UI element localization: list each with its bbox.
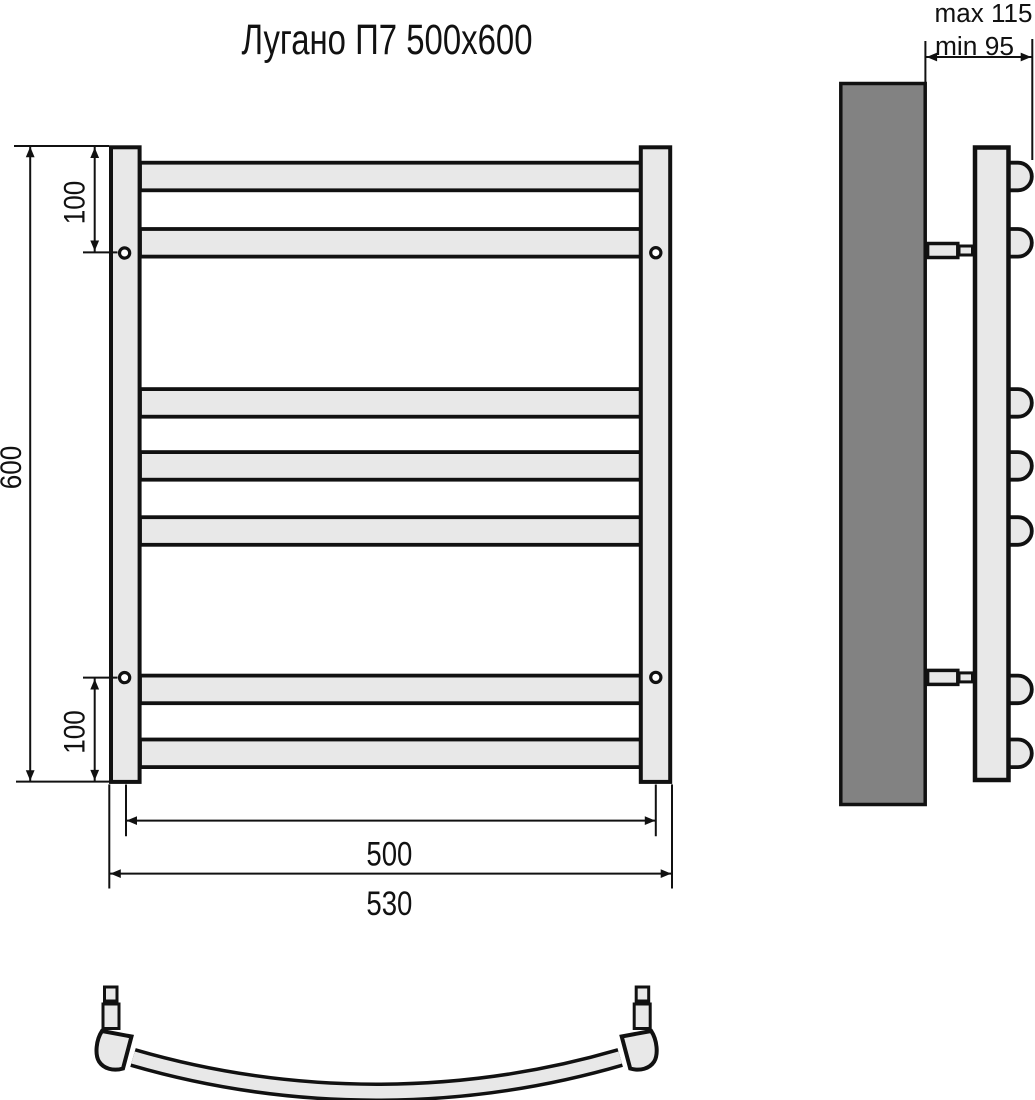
svg-text:min 95: min 95	[935, 33, 1014, 61]
svg-text:max 115: max 115	[935, 0, 1033, 28]
svg-text:600: 600	[0, 446, 28, 490]
svg-text:100: 100	[59, 710, 92, 754]
svg-text:100: 100	[59, 181, 92, 225]
svg-text:530: 530	[366, 885, 412, 923]
svg-text:Лугано П7 500x600: Лугано П7 500x600	[242, 16, 533, 64]
svg-text:500: 500	[366, 836, 412, 874]
